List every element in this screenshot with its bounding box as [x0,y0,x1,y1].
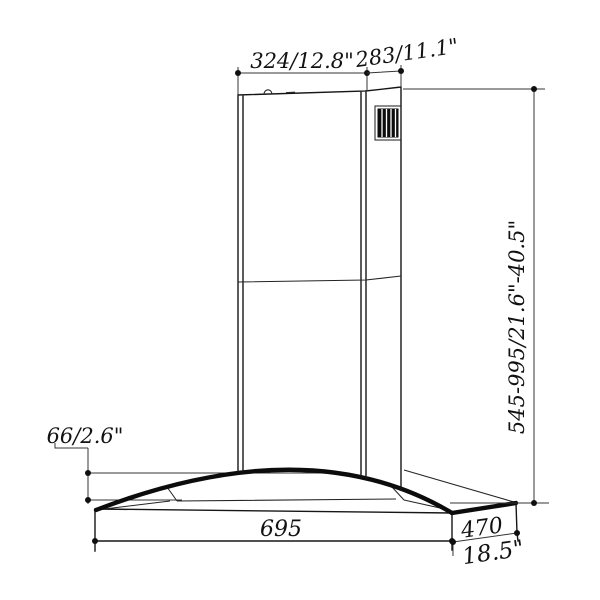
diagram-svg: 66/2.6" 324/12.8" 283/11.1" [0,0,600,600]
dimension-chimney-depth: 283/11.1" [353,34,460,87]
chimney-telescopic-seam [238,276,401,282]
overall-height-label: 545-995/21.6"-40.5" [505,220,529,434]
dim-dot [514,530,520,536]
glass-canopy [96,470,516,513]
dimension-overall-height: 545-995/21.6"-40.5" [403,86,549,506]
glass-right-depth-edge [452,503,516,513]
chimney-front-face [238,91,366,478]
dim-dot [92,538,98,544]
chimney [238,87,401,490]
dimension-base-depth: 470 18.5" [450,513,526,570]
dim-dot [450,539,456,545]
dimension-canopy-edge: 66/2.6" [47,424,345,504]
chimney-width-label: 324/12.8" [250,49,354,73]
base-width-label: 695 [260,517,302,542]
glass-front-arc [96,470,452,513]
dim-dot [531,500,537,506]
vent-grille [375,106,401,140]
dim-dot [531,86,537,92]
dim-dot [85,470,91,476]
canopy-edge-height-label: 66/2.6" [47,424,124,448]
dim-dot [85,497,91,503]
dimension-base-width: 695 [92,517,455,544]
dimension-chimney-width: 324/12.8" [235,49,370,95]
dim-dot [235,70,241,76]
chimney-side-face [366,87,401,490]
hood-dimension-drawing: 66/2.6" 324/12.8" 283/11.1" [0,0,600,600]
dim-dot [398,68,404,74]
canopy-edge-leader [55,443,88,504]
chimney-depth-label: 283/11.1" [353,34,460,72]
